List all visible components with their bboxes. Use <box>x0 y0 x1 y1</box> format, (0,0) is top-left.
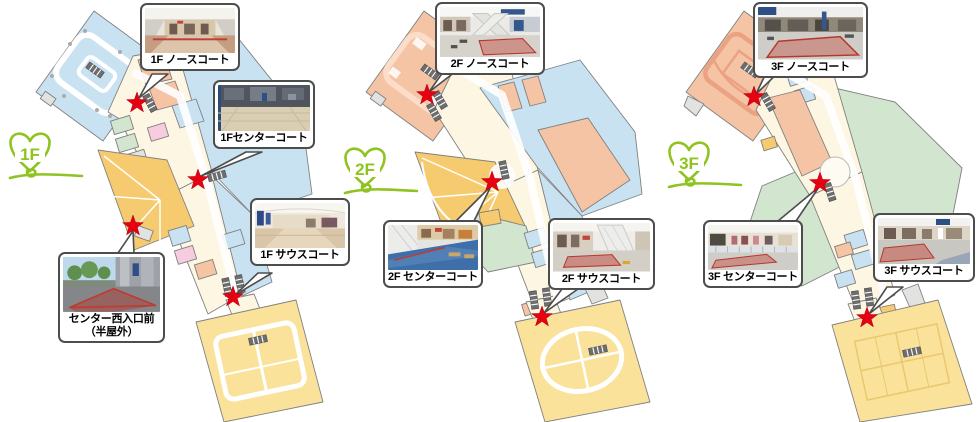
callout-3f-south-court[interactable]: 3F サウスコート <box>873 213 975 282</box>
callout-label: 2F サウスコート <box>553 272 650 286</box>
floor-2f-panel: 2F 2F ノースコート 2F センターコート 2F サウスコート <box>330 0 660 422</box>
photo-1f-west-entrance <box>63 257 160 312</box>
photo-3f-center-court <box>708 225 798 270</box>
callout-2f-center-court[interactable]: 2F センターコート <box>383 220 483 288</box>
floor-2f-logo-label: 2F <box>355 160 375 179</box>
photo-2f-south-court <box>553 223 650 272</box>
photo-3f-south-court <box>878 218 970 264</box>
callout-3f-north-court[interactable]: 3F ノースコート <box>753 2 868 78</box>
photo-2f-north-court <box>440 7 540 57</box>
photo-2f-center-court <box>388 225 478 270</box>
floor-2f-logo: 2F <box>343 143 421 201</box>
callout-label: センター西入口前 （半屋外） <box>63 312 160 339</box>
callout-label: 3F ノースコート <box>758 60 863 74</box>
callout-label: 2F センターコート <box>388 270 478 284</box>
floor-1f-panel: 1F 1F ノースコート 1Fセンターコート 1F サウスコート センター西入口 <box>0 0 356 422</box>
callout-2f-south-court[interactable]: 2F サウスコート <box>548 218 655 290</box>
callout-1f-west-entrance[interactable]: センター西入口前 （半屋外） <box>58 252 165 343</box>
floor-3f-panel: 3F 3F ノースコート 3F センターコート 3F サウスコート <box>650 0 980 422</box>
photo-3f-north-court <box>758 7 863 60</box>
floor-1f-logo: 1F <box>8 128 86 186</box>
callout-label: 3F センターコート <box>708 270 798 284</box>
floor-3f-south-building <box>832 298 972 422</box>
photo-1f-north-court <box>145 8 235 53</box>
callout-1f-north-court[interactable]: 1F ノースコート <box>140 3 240 71</box>
callout-label: 1Fセンターコート <box>218 131 310 145</box>
callout-label: 1F ノースコート <box>145 53 235 67</box>
callout-tail <box>118 231 134 253</box>
callout-3f-center-court[interactable]: 3F センターコート <box>703 220 803 288</box>
floor-1f-logo-label: 1F <box>20 145 40 164</box>
photo-1f-center-court <box>218 85 310 131</box>
callout-label: 3F サウスコート <box>878 264 970 278</box>
floor-3f-logo-label: 3F <box>679 154 699 173</box>
callout-label: 2F ノースコート <box>440 57 540 71</box>
callout-1f-center-court[interactable]: 1Fセンターコート <box>213 80 315 149</box>
mall-floor-guide: 1F 1F ノースコート 1Fセンターコート 1F サウスコート センター西入口 <box>0 0 980 422</box>
floor-3f-logo: 3F <box>667 137 745 195</box>
floor-1f-south-building <box>196 294 323 422</box>
callout-2f-north-court[interactable]: 2F ノースコート <box>435 2 545 75</box>
